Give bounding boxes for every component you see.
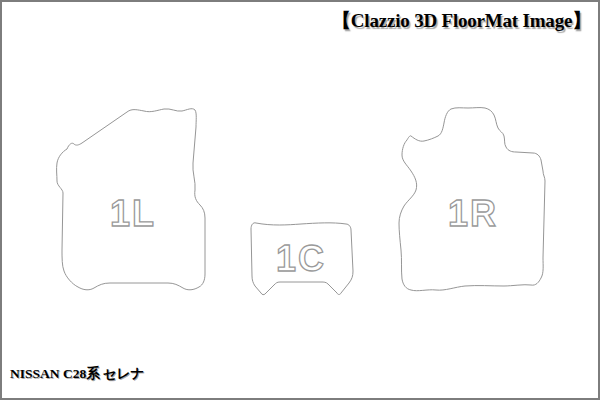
mat-label-front-right: 1R	[448, 193, 498, 234]
floormat-image-panel: 【Clazzio 3D FloorMat Image】 1L 1C 1R NIS…	[0, 0, 600, 400]
mat-label-front-center: 1C	[276, 238, 326, 279]
vehicle-name: NISSAN C28系 セレナ	[10, 366, 144, 381]
product-info: NISSAN C28系 セレナ 品 番:EN-5641-N 定員数:7/8人乗り…	[10, 336, 144, 400]
mat-label-front-left: 1L	[110, 193, 156, 234]
